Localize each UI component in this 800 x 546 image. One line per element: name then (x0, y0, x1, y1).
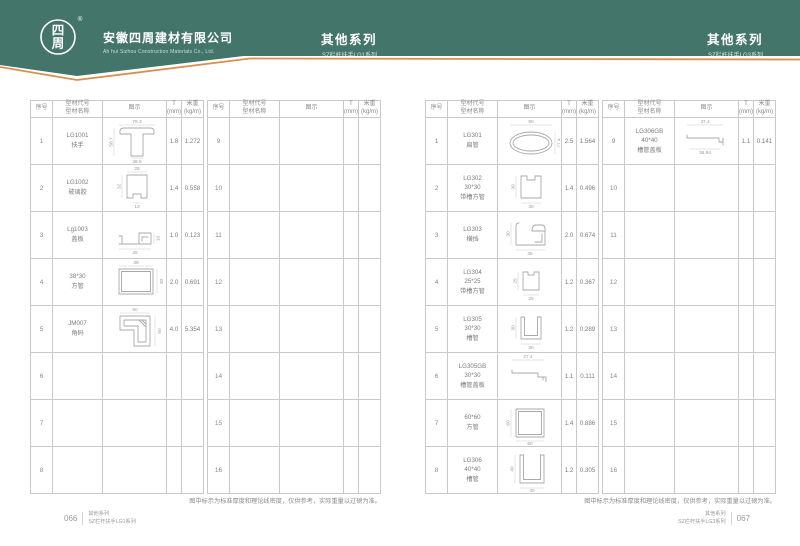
table-note-page1: 图中标示为标准厚度和理论线密度，仅供参考，实际重量以过磅为准。 (30, 496, 381, 505)
drawing-square-tube: 38 30 (105, 259, 165, 305)
weight-value: 0.111 (577, 353, 599, 400)
empty-cell (359, 353, 381, 400)
profile-table-page2-right: 序号 型材代号型材名称 图示 T(mm) 米重(kg/m) 9 LG306GB4… (602, 100, 776, 494)
row-number: 2 (31, 165, 53, 212)
row-number: 13 (603, 306, 625, 353)
table-row: 12 (603, 259, 776, 306)
row-number: 5 (31, 306, 53, 353)
empty-cell (675, 400, 739, 447)
drawing-u-channel: 30 30 (500, 306, 560, 352)
profile-code-name: Lg1003盖板 (53, 212, 103, 259)
header-code: 型材代号型材名称 (625, 101, 675, 118)
profile-code-name: LG301扁管 (448, 118, 498, 165)
empty-cell (167, 447, 182, 494)
empty-cell (344, 118, 359, 165)
empty-cell (754, 165, 776, 212)
table-row: 5 JM007角码 50 50 4.0 5.354 (31, 306, 204, 353)
header-w-line2: (kg/m) (754, 109, 775, 117)
empty-cell (625, 353, 675, 400)
thickness-value: 1.4 (562, 165, 577, 212)
row-number: 3 (426, 212, 448, 259)
profile-code: LG306GB (625, 127, 674, 137)
empty-cell (754, 447, 776, 494)
empty-cell (675, 259, 739, 306)
empty-cell (344, 259, 359, 306)
empty-cell (182, 400, 204, 447)
table-row: 5 LG30530*30槽管 30 30 1.2 0.289 (426, 306, 599, 353)
header-diagram: 图示 (675, 101, 739, 118)
weight-value: 0.886 (577, 400, 599, 447)
table-row: 15 (603, 400, 776, 447)
table-row: 13 (208, 306, 381, 353)
thickness-value: 1.2 (562, 259, 577, 306)
profile-diagram: 90 27.4 (498, 118, 562, 165)
empty-cell (739, 165, 754, 212)
row-number: 15 (208, 400, 230, 447)
dim-label: 60 (527, 441, 533, 446)
header-weight: 米重(kg/m) (754, 101, 776, 118)
header-w-line2: (kg/m) (182, 109, 203, 117)
table-row: 4 38*30方管 38 30 2.0 0.691 (31, 259, 204, 306)
company-block: 安徽四周建材有限公司 Ah hui Sizhou Construction Ma… (103, 29, 233, 55)
profile-spec: 30*30 (448, 324, 497, 334)
table-row: 10 (208, 165, 381, 212)
weight-value: 1.272 (182, 118, 204, 165)
dim-label: 27.4 (556, 138, 560, 148)
profile-diagram: 25 25 (498, 259, 562, 306)
weight-value: 1.564 (577, 118, 599, 165)
drawing-channel-cover: 27.4 (500, 353, 560, 399)
profile-name: 带槽方管 (448, 193, 497, 203)
profile-diagram: 10 25 (103, 212, 167, 259)
profile-name: 方管 (448, 423, 497, 433)
company-name-cn: 安徽四周建材有限公司 (103, 29, 233, 46)
profile-name: 槽管 (448, 334, 497, 344)
profile-code-name: 38*30方管 (53, 259, 103, 306)
empty-cell (625, 259, 675, 306)
profile-name: 扁管 (448, 141, 497, 151)
thickness-value: 4.0 (167, 306, 182, 353)
catalog-page: 四 周 ® 安徽四周建材有限公司 Ah hui Sizhou Construct… (0, 0, 800, 546)
table-row: 14 (208, 353, 381, 400)
profile-name: 横挡 (448, 235, 497, 245)
profile-diagram: 27.4 (498, 353, 562, 400)
header-no: 序号 (603, 101, 625, 118)
row-number: 15 (603, 400, 625, 447)
drawing-channel-cover-wide: 37.4 36.94 (677, 118, 737, 164)
table-row: 6 (31, 353, 204, 400)
weight-value: 0.367 (577, 259, 599, 306)
table-row: 8 LG30640*40槽管 40 40 1.2 0.305 (426, 447, 599, 494)
empty-cell (359, 447, 381, 494)
profile-code-name: LG30640*40槽管 (448, 447, 498, 494)
table-row: 8 (31, 447, 204, 494)
header-code: 型材代号型材名称 (230, 101, 280, 118)
thickness-value: 2.0 (167, 259, 182, 306)
dim-label: 35 (527, 251, 533, 257)
row-number: 16 (208, 447, 230, 494)
dim-label: 30 (510, 184, 516, 190)
empty-cell (675, 306, 739, 353)
profile-name: 角码 (53, 329, 102, 339)
table-row: 15 (208, 400, 381, 447)
empty-cell (359, 165, 381, 212)
profile-code: LG305 (448, 315, 497, 325)
dim-label: 32 (116, 184, 122, 190)
empty-cell (230, 259, 280, 306)
empty-cell (754, 212, 776, 259)
drawing-glass-clamp: 25 32 13 (105, 165, 165, 211)
header-t-line2: (mm) (167, 109, 181, 117)
profile-spec: 40*40 (625, 136, 674, 146)
table-row: 16 (603, 447, 776, 494)
footer-series-left: 其他系列 SZ栏杆扶手LG1系列 (88, 511, 136, 527)
weight-value: 0.674 (577, 212, 599, 259)
profile-spec: 25*25 (448, 277, 497, 287)
row-number: 1 (31, 118, 53, 165)
empty-cell (739, 212, 754, 259)
header-code-line2: 型材名称 (448, 109, 497, 117)
empty-cell (280, 259, 344, 306)
empty-cell (344, 212, 359, 259)
header-w-line2: (kg/m) (577, 109, 598, 117)
header-code-line1: 型材代号 (53, 101, 102, 109)
table-header-row: 序号 型材代号型材名称 图示 T(mm) 米重(kg/m) (31, 101, 204, 118)
weight-value: 0.691 (182, 259, 204, 306)
dim-label: 58.7 (108, 137, 114, 147)
row-number: 6 (31, 353, 53, 400)
dim-label: 40 (529, 488, 535, 493)
thickness-value: 1.4 (562, 400, 577, 447)
dim-label: 25 (132, 250, 138, 256)
profile-name: 玻璃胶 (53, 188, 102, 198)
empty-cell (754, 306, 776, 353)
dim-label: 30 (528, 204, 534, 210)
series-title-page2: 其他系列 SZ栏杆扶手LG3系列 (707, 29, 763, 59)
profile-code-name: 60*60方管 (448, 400, 498, 447)
dim-label: 25 (134, 166, 140, 172)
weight-value: 0.305 (577, 447, 599, 494)
table-row: 11 (603, 212, 776, 259)
thickness-value: 1.0 (167, 212, 182, 259)
empty-cell (103, 447, 167, 494)
header-code: 型材代号型材名称 (448, 101, 498, 118)
company-name-en: Ah hui Sizhou Construction Materials Co.… (103, 49, 233, 55)
dim-label: 78.3 (132, 119, 142, 125)
weight-value: 0.141 (754, 118, 776, 165)
empty-cell (103, 400, 167, 447)
profile-diagram: 40 40 (498, 447, 562, 494)
empty-cell (103, 353, 167, 400)
profile-code-name: LG1002玻璃胶 (53, 165, 103, 212)
header-no: 序号 (31, 101, 53, 118)
profile-diagram: 37.4 36.94 (675, 118, 739, 165)
profile-code: LG306 (448, 456, 497, 466)
series-title: 其他系列 (321, 29, 377, 48)
empty-cell (280, 400, 344, 447)
empty-cell (359, 212, 381, 259)
thickness-value: 1.4 (167, 165, 182, 212)
drawing-oval-tube: 90 27.4 (500, 118, 560, 164)
profile-code: LG301 (448, 131, 497, 141)
profile-code: LG302 (448, 174, 497, 184)
header-weight: 米重(kg/m) (359, 101, 381, 118)
profile-diagram: 38 30 (103, 259, 167, 306)
row-number: 16 (603, 447, 625, 494)
dim-label: 13 (134, 204, 140, 210)
thickness-value: 2.0 (562, 212, 577, 259)
profile-code-name: LG305GB30*30槽管盖板 (448, 353, 498, 400)
profile-code: LG305GB (448, 362, 497, 372)
empty-cell (230, 118, 280, 165)
row-number: 1 (426, 118, 448, 165)
weight-value: 0.289 (577, 306, 599, 353)
table-header-row: 序号 型材代号型材名称 图示 T(mm) 米重(kg/m) (426, 101, 599, 118)
empty-cell (182, 353, 204, 400)
table-row: 13 (603, 306, 776, 353)
row-number: 10 (603, 165, 625, 212)
header-t-line1: T (739, 101, 753, 109)
profile-name: 扶手 (53, 141, 102, 151)
table-row: 16 (208, 447, 381, 494)
header-diagram: 图示 (103, 101, 167, 118)
row-number: 7 (31, 400, 53, 447)
row-number: 13 (208, 306, 230, 353)
table-row: 6 LG305GB30*30槽管盖板 27.4 1.1 0.111 (426, 353, 599, 400)
row-number: 3 (31, 212, 53, 259)
header-thickness: T(mm) (344, 101, 359, 118)
weight-value: 0.496 (577, 165, 599, 212)
profile-name: 槽管 (448, 475, 497, 485)
row-number: 2 (426, 165, 448, 212)
weight-value: 0.558 (182, 165, 204, 212)
table-row: 3 LG303横挡 30 35 2.0 0.674 (426, 212, 599, 259)
profile-table-page2-left: 序号 型材代号型材名称 图示 T(mm) 米重(kg/m) 1 LG301扁管 … (425, 100, 599, 494)
table-row: 1 LG1001扶手 78.3 58.7 38.5 1.8 1.272 (31, 118, 204, 165)
empty-cell (625, 400, 675, 447)
empty-cell (675, 447, 739, 494)
profile-code-name: LG30230*30带槽方管 (448, 165, 498, 212)
profile-diagram: 25 32 13 (103, 165, 167, 212)
dim-label: 37.4 (700, 119, 710, 125)
thickness-value: 1.2 (562, 306, 577, 353)
footer-series-right: 其他系列 SZ栏杆扶手LG3系列 (678, 511, 726, 527)
dim-label: 90 (528, 119, 534, 125)
header-thickness: T(mm) (739, 101, 754, 118)
profile-diagram: 30 30 (498, 306, 562, 353)
row-number: 4 (426, 259, 448, 306)
header-code: 型材代号型材名称 (53, 101, 103, 118)
table-row: 2 LG1002玻璃胶 25 32 13 1.4 0.558 (31, 165, 204, 212)
empty-cell (280, 306, 344, 353)
dim-label: 30 (159, 279, 165, 285)
profile-name: 盖板 (53, 235, 102, 245)
empty-cell (625, 165, 675, 212)
empty-cell (739, 306, 754, 353)
footer-series-title: 其他系列 (678, 511, 726, 519)
profile-diagram: 60 60 (498, 400, 562, 447)
profile-name: 槽管盖板 (448, 381, 497, 391)
empty-cell (754, 353, 776, 400)
table-row: 2 LG30230*30带槽方管 30 30 1.4 0.496 (426, 165, 599, 212)
thickness-value: 1.8 (167, 118, 182, 165)
profile-code-name: LG1001扶手 (53, 118, 103, 165)
empty-cell (280, 118, 344, 165)
page-number-right: 067 (737, 514, 750, 523)
drawing-big-square-tube: 60 60 (500, 400, 560, 446)
thickness-value: 2.5 (562, 118, 577, 165)
empty-cell (625, 447, 675, 494)
drawing-slotted-square-tube: 30 30 (500, 165, 560, 211)
drawing-slotted-square-tube-small: 25 25 (500, 259, 560, 305)
empty-cell (625, 306, 675, 353)
drawing-cross-bar: 30 35 (500, 212, 560, 258)
header-code-line2: 型材名称 (53, 109, 102, 117)
empty-cell (739, 400, 754, 447)
profile-diagram: 50 50 (103, 306, 167, 353)
dim-label: 50 (132, 307, 138, 313)
empty-cell (359, 118, 381, 165)
empty-cell (53, 353, 103, 400)
header-t-line1: T (562, 101, 576, 109)
empty-cell (230, 400, 280, 447)
empty-cell (754, 400, 776, 447)
table-row: 7 60*60方管 60 60 1.4 0.886 (426, 400, 599, 447)
series-subtitle: SZ栏杆扶手LG3系列 (707, 50, 763, 59)
empty-cell (167, 400, 182, 447)
empty-cell (280, 165, 344, 212)
profile-code-name: JM007角码 (53, 306, 103, 353)
footer-left: 066 其他系列 SZ栏杆扶手LG1系列 (64, 511, 136, 527)
logo-char-2: 周 (52, 37, 65, 51)
profile-table-page1-left: 序号 型材代号型材名称 图示 T(mm) 米重(kg/m) 1 LG1001扶手… (30, 100, 204, 494)
header-w-line1: 米重 (754, 101, 775, 109)
empty-cell (230, 212, 280, 259)
empty-cell (739, 259, 754, 306)
empty-cell (359, 400, 381, 447)
footer-series-subtitle: SZ栏杆扶手LG3系列 (678, 519, 726, 527)
header-no: 序号 (208, 101, 230, 118)
footer-right: 其他系列 SZ栏杆扶手LG3系列 067 (678, 511, 750, 527)
header-weight: 米重(kg/m) (182, 101, 204, 118)
row-number: 12 (603, 259, 625, 306)
empty-cell (280, 353, 344, 400)
series-subtitle: SZ栏杆扶手LG1系列 (321, 50, 377, 59)
table-row: 7 (31, 400, 204, 447)
dim-label: 50 (157, 328, 163, 334)
header-t-line2: (mm) (562, 109, 576, 117)
empty-cell (754, 259, 776, 306)
header-no: 序号 (426, 101, 448, 118)
header-t-line1: T (167, 101, 181, 109)
row-number: 12 (208, 259, 230, 306)
row-number: 9 (208, 118, 230, 165)
thickness-value: 1.1 (739, 118, 754, 165)
row-number: 14 (603, 353, 625, 400)
profile-code-name: LG30530*30槽管 (448, 306, 498, 353)
profile-code: 60*60 (448, 413, 497, 423)
profile-code: JM007 (53, 319, 102, 329)
row-number: 7 (426, 400, 448, 447)
profile-name: 方管 (53, 282, 102, 292)
footer-divider (82, 512, 83, 525)
thickness-value: 1.2 (562, 447, 577, 494)
profile-code-name: LG30425*25带槽方管 (448, 259, 498, 306)
table-row: 9 (208, 118, 381, 165)
row-number: 10 (208, 165, 230, 212)
empty-cell (625, 212, 675, 259)
row-number: 14 (208, 353, 230, 400)
empty-cell (344, 165, 359, 212)
profile-diagram: 30 30 (498, 165, 562, 212)
empty-cell (182, 447, 204, 494)
row-number: 8 (426, 447, 448, 494)
table-row: 11 (208, 212, 381, 259)
table-header-row: 序号 型材代号型材名称 图示 T(mm) 米重(kg/m) (603, 101, 776, 118)
table-row: 1 LG301扁管 90 27.4 2.5 1.564 (426, 118, 599, 165)
header-diagram: 图示 (498, 101, 562, 118)
empty-cell (359, 306, 381, 353)
empty-cell (359, 259, 381, 306)
empty-cell (739, 447, 754, 494)
empty-cell (280, 447, 344, 494)
thickness-value: 1.1 (562, 353, 577, 400)
profile-code: LG1001 (53, 131, 102, 141)
drawing-u-channel-tall: 40 40 (500, 447, 560, 493)
header-thickness: T(mm) (167, 101, 182, 118)
header-code-line1: 型材代号 (448, 101, 497, 109)
dim-label: 38.5 (132, 159, 142, 164)
weight-value: 5.354 (182, 306, 204, 353)
empty-cell (53, 400, 103, 447)
dim-label: 38 (133, 260, 139, 266)
table-header-row: 序号 型材代号型材名称 图示 T(mm) 米重(kg/m) (208, 101, 381, 118)
empty-cell (344, 306, 359, 353)
profile-diagram: 30 35 (498, 212, 562, 259)
table-row: 3 Lg1003盖板 10 25 1.0 0.123 (31, 212, 204, 259)
profile-code: Lg1003 (53, 225, 102, 235)
footer-series-title: 其他系列 (88, 511, 136, 519)
table-row: 4 LG30425*25带槽方管 25 25 1.2 0.367 (426, 259, 599, 306)
footer-divider (731, 512, 732, 525)
table-row: 9 LG306GB40*40槽管盖板 37.4 36.94 1.1 0.141 (603, 118, 776, 165)
header-w-line2: (kg/m) (359, 109, 380, 117)
empty-cell (344, 447, 359, 494)
empty-cell (167, 353, 182, 400)
profile-code: 38*30 (53, 272, 102, 282)
row-number: 11 (603, 212, 625, 259)
empty-cell (230, 447, 280, 494)
page-number-left: 066 (64, 514, 77, 523)
profile-diagram: 78.3 58.7 38.5 (103, 118, 167, 165)
header-code-line2: 型材名称 (625, 109, 674, 117)
row-number: 6 (426, 353, 448, 400)
registered-mark: ® (78, 15, 83, 23)
profile-name: 带槽方管 (448, 287, 497, 297)
table-row: 12 (208, 259, 381, 306)
row-number: 9 (603, 118, 625, 165)
header-w-line1: 米重 (577, 101, 598, 109)
table-row: 14 (603, 353, 776, 400)
drawing-handrail: 78.3 58.7 38.5 (105, 118, 165, 164)
table-row: 10 (603, 165, 776, 212)
profile-spec: 30*30 (448, 371, 497, 381)
dim-label: 60 (505, 420, 511, 426)
dim-label: 40 (509, 466, 515, 472)
empty-cell (230, 353, 280, 400)
empty-cell (675, 353, 739, 400)
company-logo: 四 周 ® (36, 10, 88, 64)
